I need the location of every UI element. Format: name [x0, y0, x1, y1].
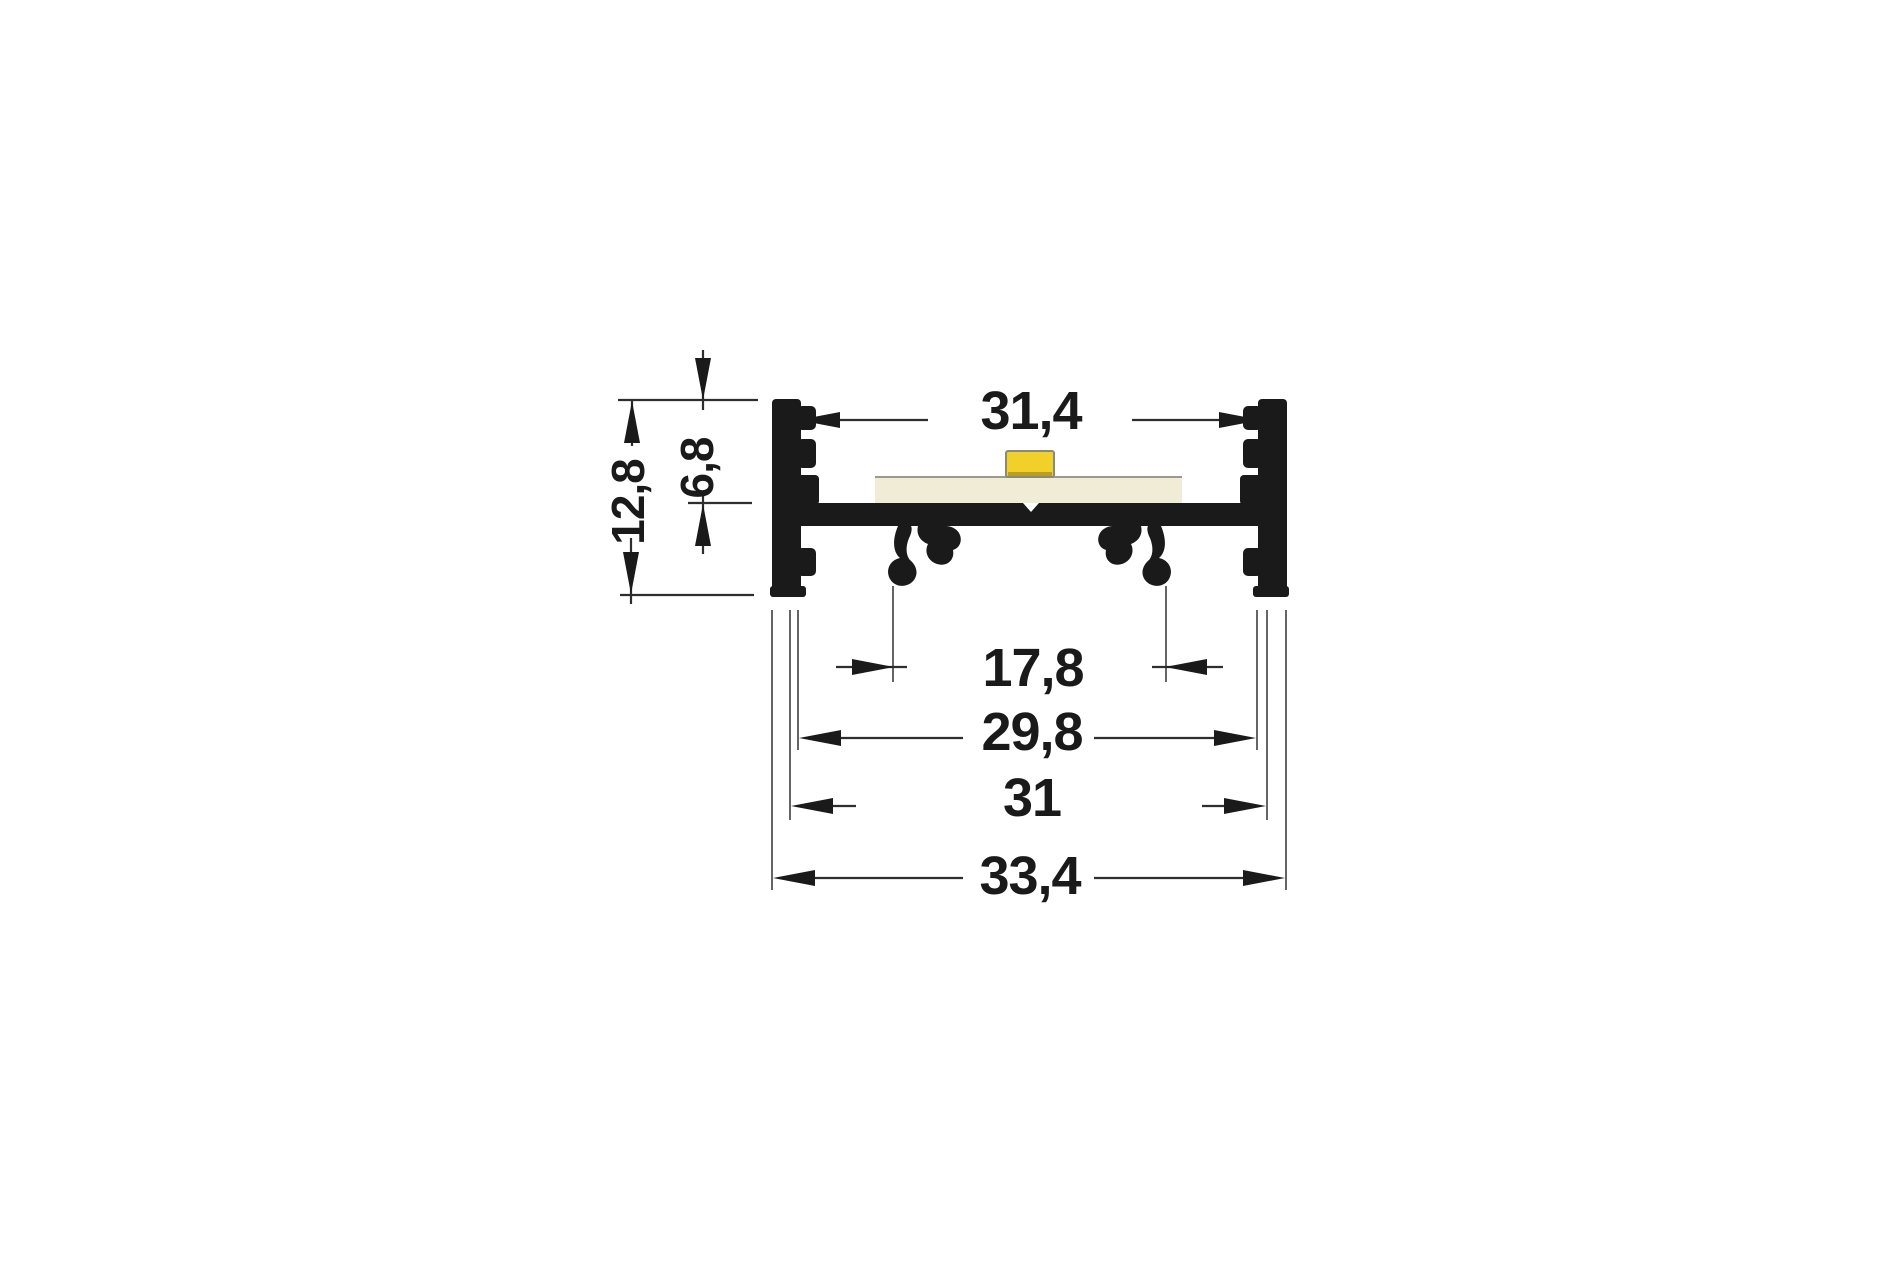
mounting-clip-arm: [917, 526, 960, 565]
dim-label-inner-bottom-width: 29,8: [981, 702, 1082, 762]
arrow-right-icon: [1243, 870, 1285, 886]
technical-drawing-canvas: 31,4 6,8 12,8 1: [0, 0, 1893, 1265]
arrow-left-icon: [773, 870, 815, 886]
arrow-down-icon: [695, 358, 711, 400]
dim-label-inner-top-width: 31,4: [980, 381, 1082, 441]
arrow-up-icon: [695, 504, 711, 546]
led-solder-pad: [1008, 472, 1052, 476]
dim-inner-top-width: 31,4: [798, 381, 1261, 441]
arrow-left-icon: [791, 798, 833, 814]
wall-hook: [797, 548, 816, 576]
dim-clip-spacing: 17,8: [836, 638, 1223, 698]
arrow-right-icon: [1224, 798, 1266, 814]
wall-foot: [770, 586, 806, 597]
dim-heights: 6,8 12,8: [602, 350, 758, 604]
arrow-right-icon: [1214, 730, 1256, 746]
dim-inner-bottom-width: 29,8: [799, 702, 1256, 762]
wall-tooth: [797, 475, 819, 505]
mounting-clip: [888, 526, 916, 586]
dim-groove-width: 31: [791, 768, 1266, 828]
wall-bar: [772, 399, 801, 597]
dim-label-upper-height: 6,8: [671, 437, 723, 498]
dim-label-total-height: 12,8: [602, 459, 654, 545]
dim-label-clip-spacing: 17,8: [982, 638, 1083, 698]
dim-total-width: 33,4: [773, 846, 1285, 906]
profile-cross-section-drawing: 31,4 6,8 12,8 1: [0, 0, 1893, 1265]
arrow-right-icon: [852, 659, 894, 675]
pcb-strip: [875, 478, 1182, 503]
arrow-left-icon: [1165, 659, 1207, 675]
arrow-up-icon: [624, 401, 640, 443]
wall-tooth: [797, 439, 816, 468]
dim-label-groove-width: 31: [1003, 768, 1061, 828]
arrow-down-icon: [623, 552, 639, 594]
arrow-left-icon: [799, 730, 841, 746]
dim-label-total-width: 33,4: [979, 846, 1081, 906]
